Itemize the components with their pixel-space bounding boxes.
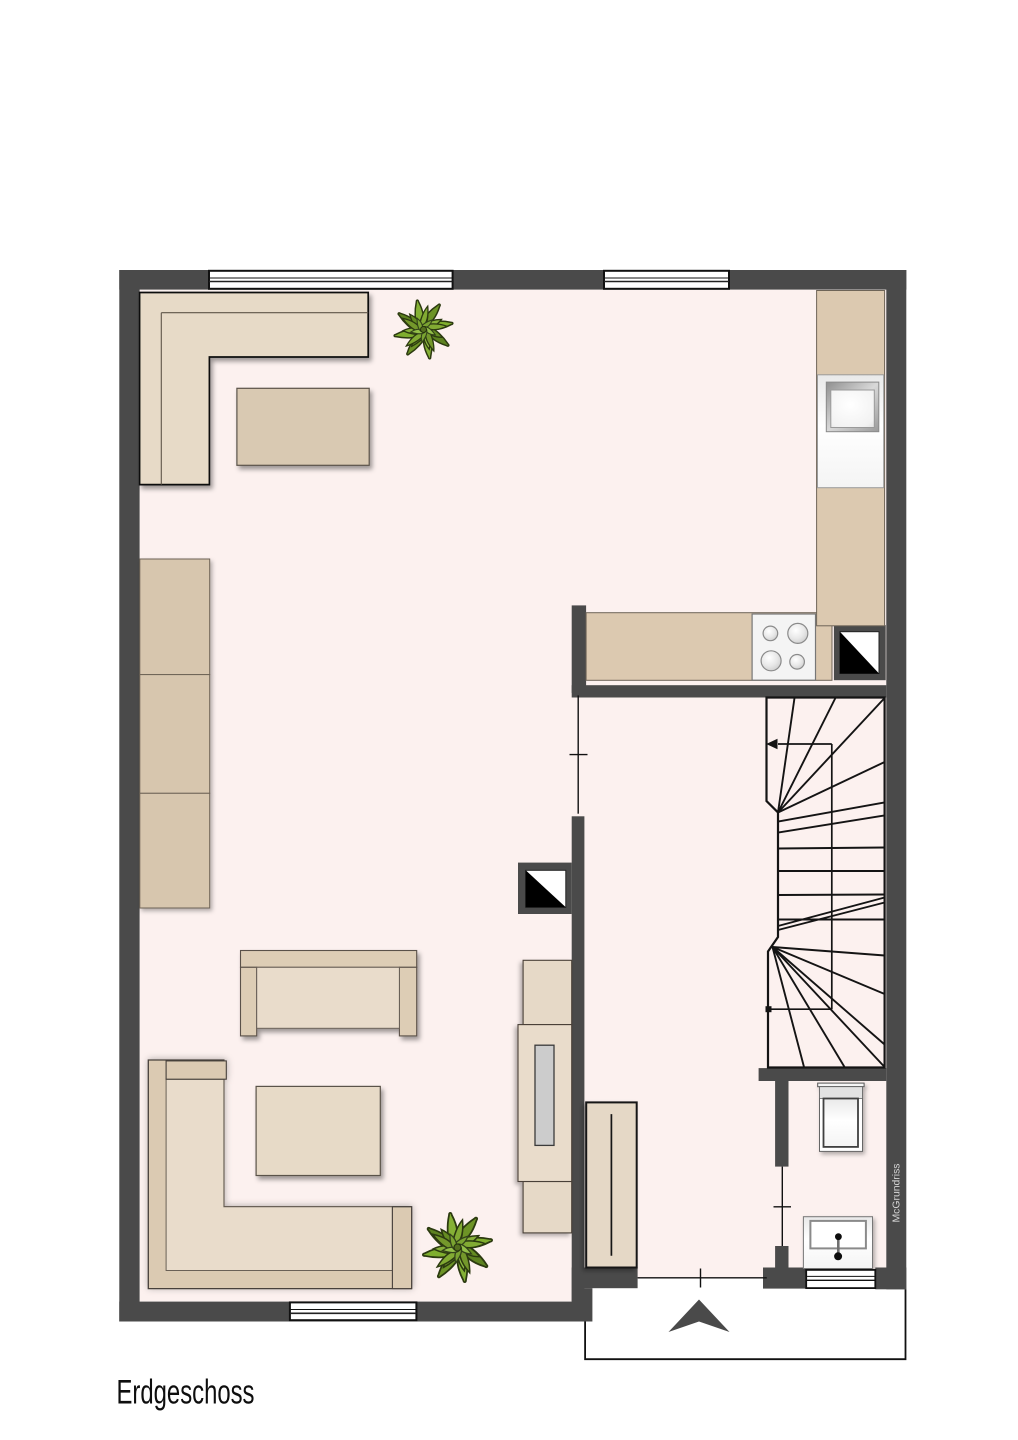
svg-text:McGrundriss: McGrundriss [891, 1164, 903, 1223]
svg-text:Erdgeschoss: Erdgeschoss [117, 1374, 255, 1412]
